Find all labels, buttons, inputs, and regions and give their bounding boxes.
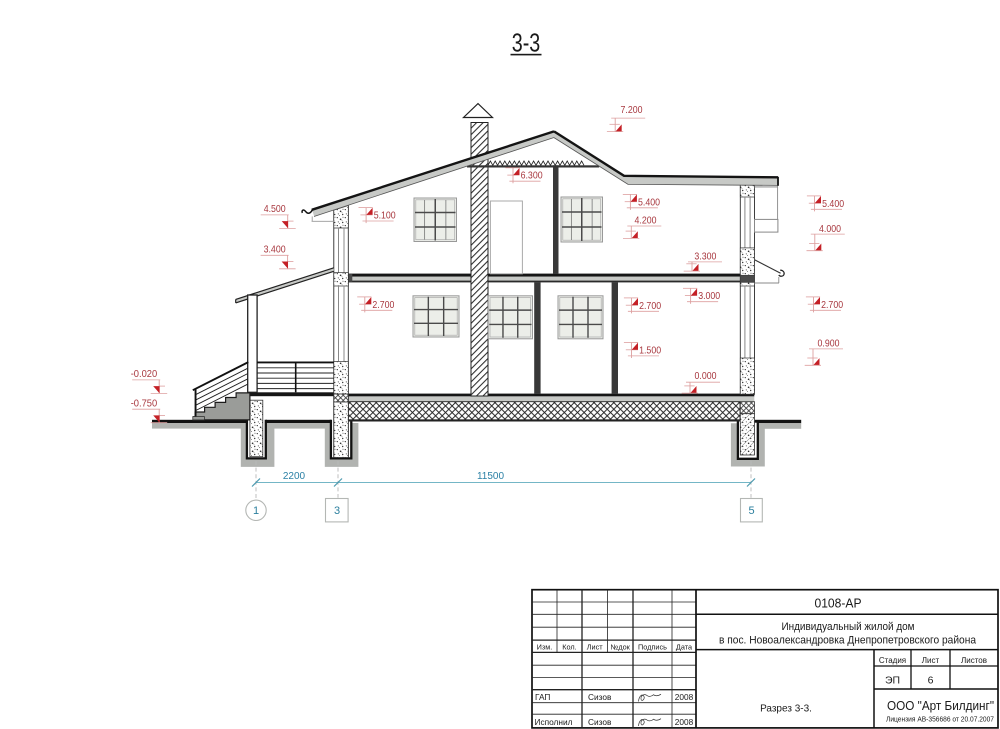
svg-text:ООО "Арт Билдинг": ООО "Арт Билдинг"	[887, 698, 994, 713]
svg-text:2008: 2008	[675, 692, 694, 702]
svg-text:11500: 11500	[477, 471, 505, 482]
svg-text:2008: 2008	[675, 717, 694, 727]
svg-text:3.400: 3.400	[264, 244, 286, 256]
svg-text:4.500: 4.500	[264, 203, 286, 215]
svg-text:2.700: 2.700	[639, 300, 661, 312]
svg-text:6: 6	[928, 675, 934, 687]
svg-text:5: 5	[748, 505, 754, 517]
svg-text:0.900: 0.900	[818, 338, 840, 350]
svg-text:2200: 2200	[283, 471, 306, 482]
svg-text:Стадия: Стадия	[879, 656, 906, 665]
svg-text:ЭП: ЭП	[885, 675, 900, 687]
svg-text:Подпись: Подпись	[638, 642, 667, 651]
svg-text:1: 1	[253, 505, 259, 517]
svg-text:5.400: 5.400	[638, 196, 660, 208]
svg-text:4.200: 4.200	[635, 215, 657, 227]
svg-text:5.100: 5.100	[374, 210, 396, 222]
svg-text:-0.020: -0.020	[131, 368, 158, 380]
svg-text:Сизов: Сизов	[588, 717, 612, 727]
svg-text:3-3: 3-3	[512, 28, 541, 58]
svg-text:Индивидуальный жилой дом: Индивидуальный жилой дом	[782, 621, 915, 633]
svg-text:в пос. Новоалександровка Днепр: в пос. Новоалександровка Днепропетровско…	[719, 635, 977, 647]
svg-text:1.500: 1.500	[639, 344, 661, 356]
svg-text:-0.750: -0.750	[131, 397, 158, 409]
svg-text:Лист: Лист	[587, 642, 604, 651]
svg-text:4.000: 4.000	[819, 223, 841, 235]
svg-text:Лицензия АВ-356686 от 20.07.20: Лицензия АВ-356686 от 20.07.2007	[886, 716, 994, 723]
svg-text:Разрез 3-3.: Разрез 3-3.	[760, 704, 812, 715]
svg-text:ГАП: ГАП	[535, 692, 550, 702]
svg-text:2.700: 2.700	[372, 299, 394, 311]
svg-text:Листов: Листов	[961, 656, 987, 665]
svg-text:2.700: 2.700	[821, 299, 843, 311]
svg-text:Дата: Дата	[676, 642, 693, 651]
svg-text:5.400: 5.400	[822, 198, 844, 210]
svg-text:0.000: 0.000	[695, 370, 717, 382]
svg-text:7.200: 7.200	[621, 104, 643, 116]
svg-text:6.300: 6.300	[521, 170, 543, 182]
svg-text:0108-АР: 0108-АР	[815, 596, 862, 611]
svg-text:3.300: 3.300	[694, 251, 716, 263]
svg-text:Исполнил: Исполнил	[535, 717, 573, 727]
svg-text:№док: №док	[611, 642, 631, 651]
svg-text:Лист: Лист	[922, 656, 940, 665]
svg-text:Изм.: Изм.	[537, 642, 553, 651]
svg-text:3.000: 3.000	[698, 290, 720, 302]
svg-text:Сизов: Сизов	[588, 692, 612, 702]
svg-text:Кол.: Кол.	[562, 642, 576, 651]
svg-text:3: 3	[334, 505, 340, 517]
